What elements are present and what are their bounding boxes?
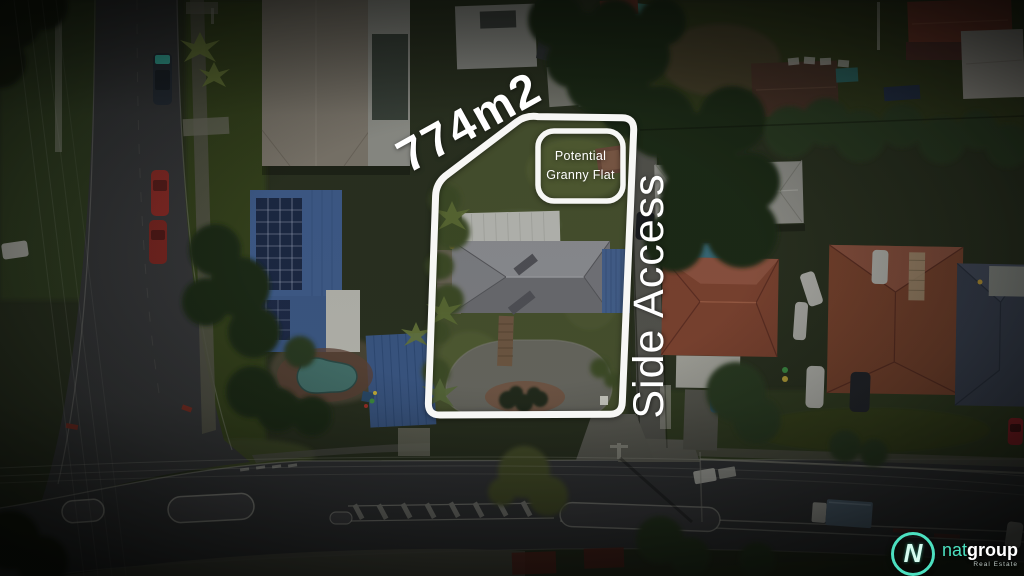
red-paved-crossing <box>584 547 625 568</box>
parked-suv <box>153 53 172 105</box>
agency-logo: N natgroup Real Estate <box>891 532 1018 576</box>
dark-car <box>849 372 870 413</box>
granny-flat-label-line1: Potential <box>555 147 606 166</box>
granny-flat-label-line2: Granny Flat <box>546 166 615 185</box>
granny-flat-label: Potential Granny Flat <box>538 131 623 201</box>
red-car <box>149 220 167 264</box>
logo-tagline: Real Estate <box>973 561 1018 568</box>
aerial-photo: 774m2 Potential Granny Flat Side Access … <box>0 0 1024 576</box>
power-pole-crossarm <box>610 445 628 448</box>
white-car <box>805 366 824 409</box>
logo-circle-icon: N <box>891 532 935 576</box>
garden-steps <box>497 316 514 366</box>
red-car <box>151 170 169 216</box>
terracotta-house-b <box>827 245 964 395</box>
terracotta-house-a <box>661 257 779 357</box>
red-paved-crossing <box>512 551 557 575</box>
logo-monogram: N <box>904 540 923 566</box>
utility-marker <box>600 396 608 405</box>
neighbour-driveway <box>398 428 430 456</box>
logo-text: natgroup Real Estate <box>942 541 1018 568</box>
white-car <box>793 302 809 341</box>
white-car <box>871 250 888 285</box>
logo-wordmark: natgroup <box>942 541 1018 559</box>
flag-pole <box>877 2 880 50</box>
logo-brand-light: nat <box>942 540 967 560</box>
side-access-label: Side Access <box>625 156 673 436</box>
dark-blue-roof-house <box>955 263 1024 406</box>
logo-brand-bold: group <box>967 540 1018 560</box>
